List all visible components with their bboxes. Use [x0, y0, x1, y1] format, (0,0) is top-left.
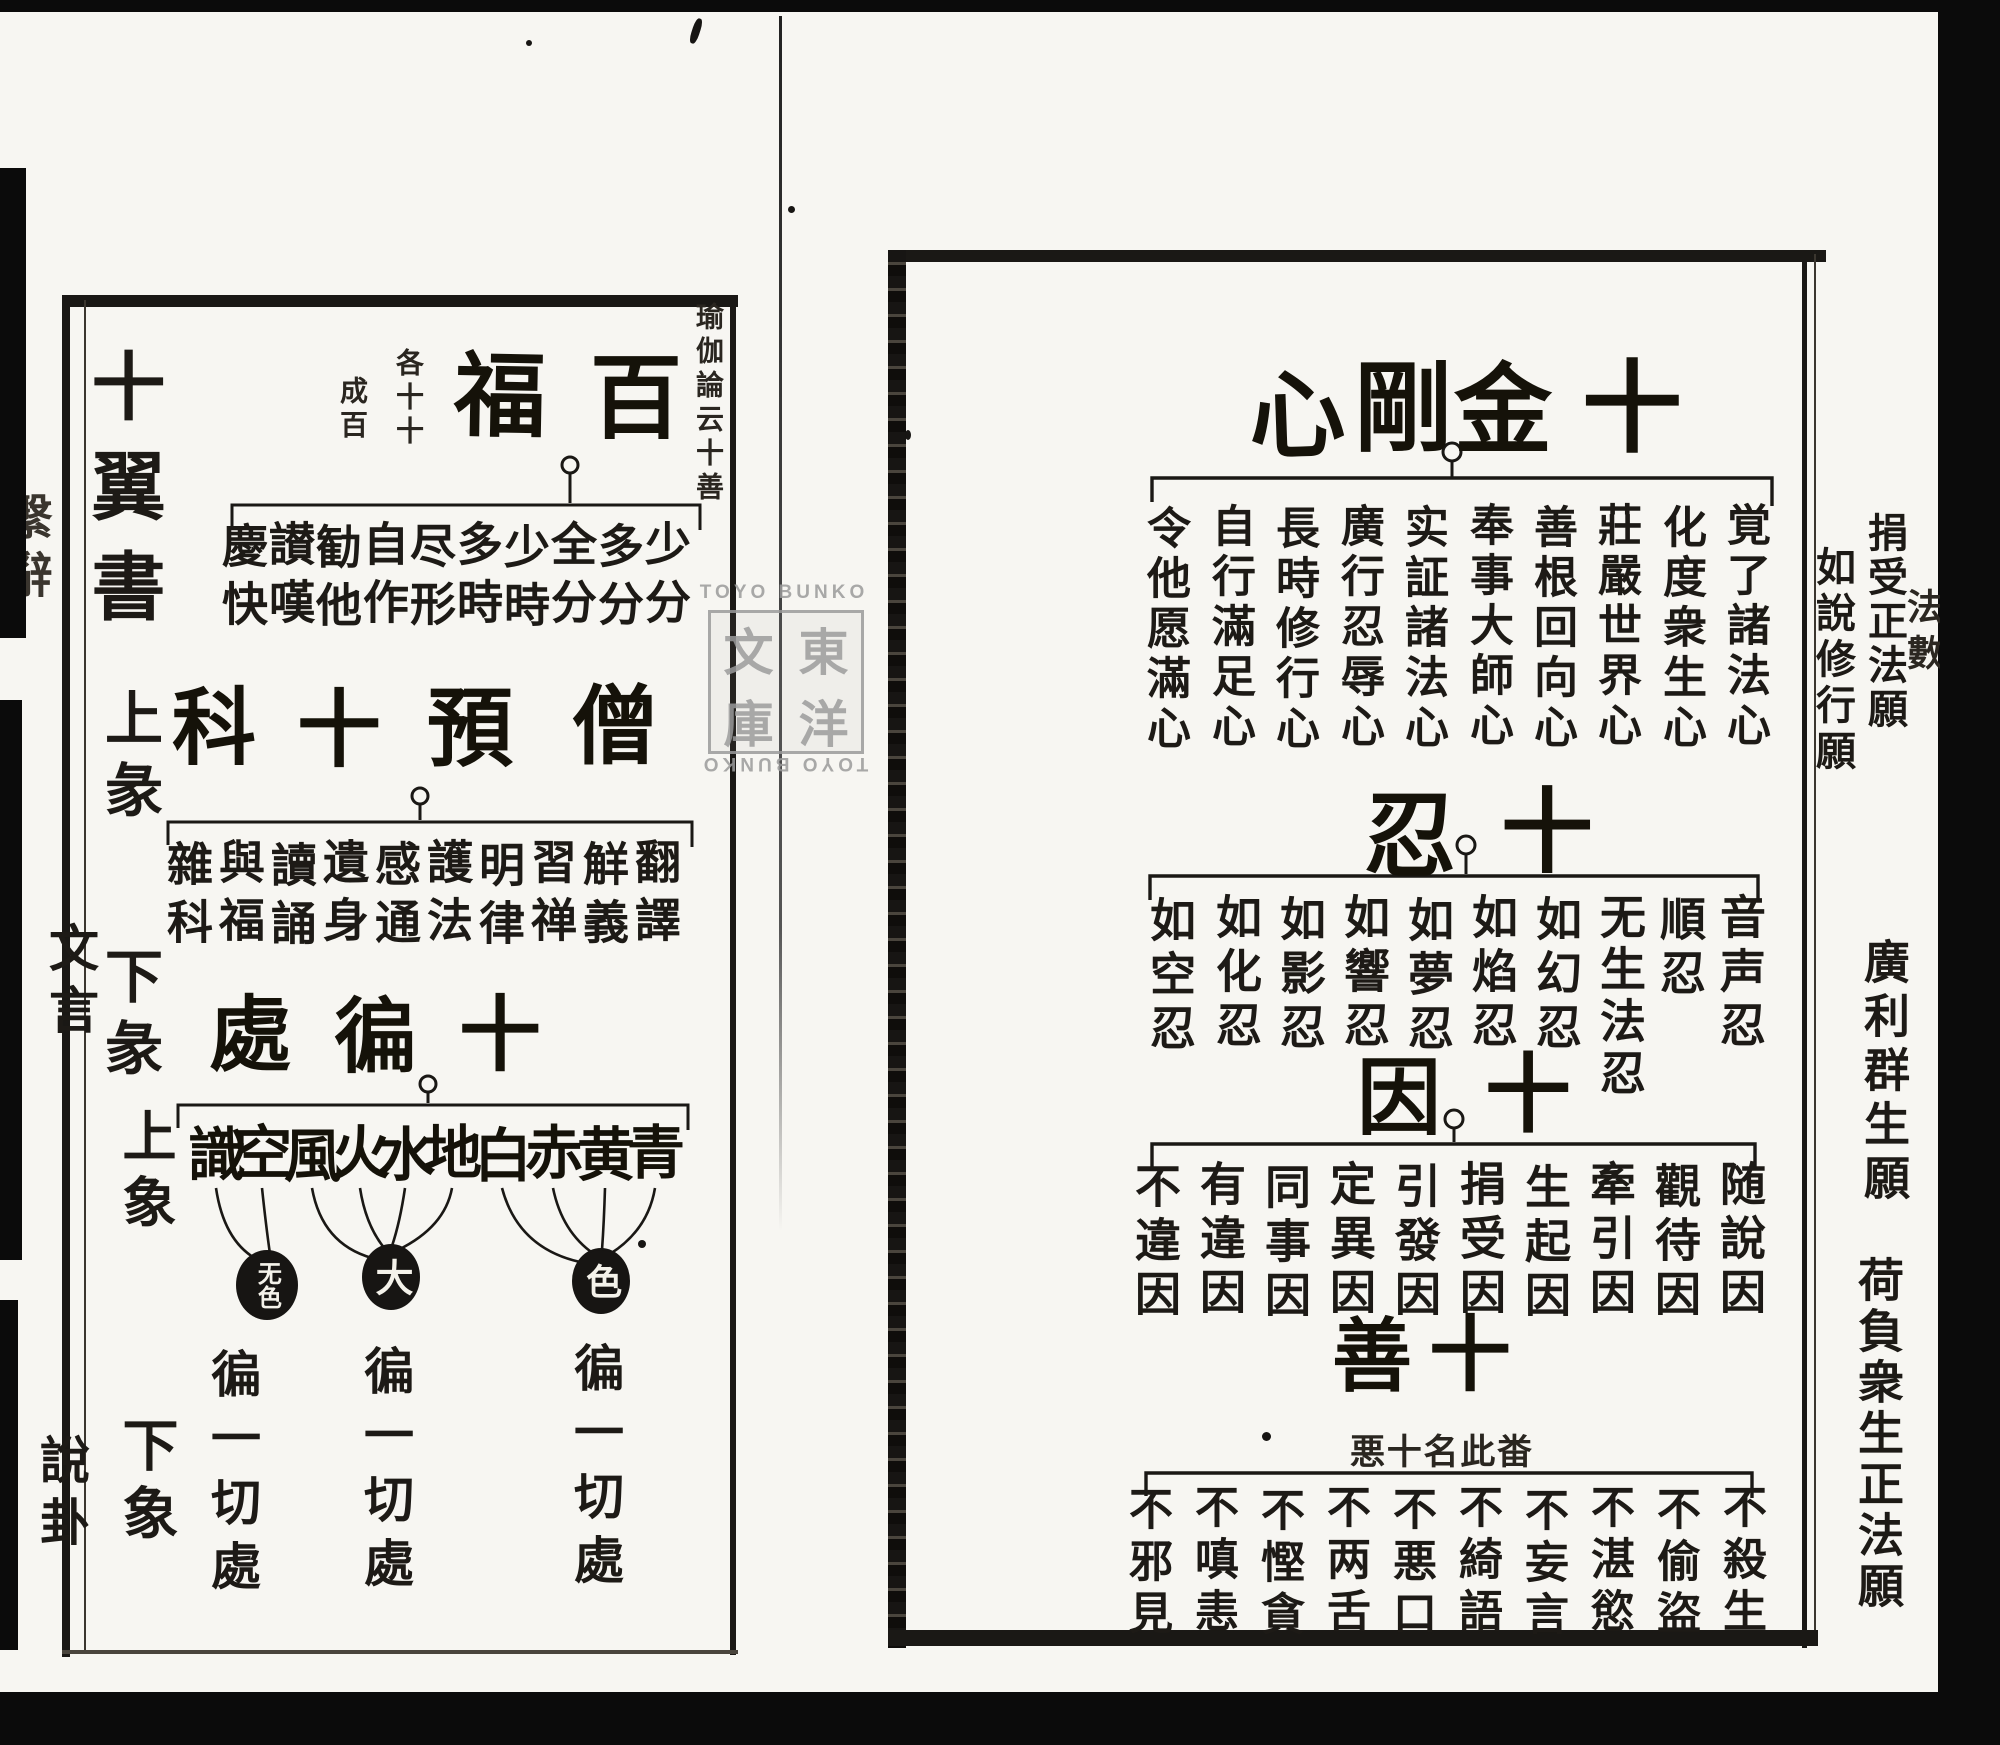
item-column: 讀誦 [268, 841, 314, 957]
item-column: 不違因 [1132, 1162, 1178, 1324]
watermark-bottom-text: TOYO BUNKO [694, 752, 874, 774]
fore-edge-label: 法數 [1904, 588, 1940, 680]
item-column: 明律 [476, 841, 522, 957]
right-title-kongo-4: 心 [1247, 366, 1346, 465]
ink-speck [638, 1240, 646, 1248]
item-column: 善根回向心 [1529, 504, 1573, 754]
edge-partial-clip: 繫辭 [26, 492, 62, 642]
margin-label-column: 十翼書 [85, 348, 159, 648]
item-column: 定異因 [1327, 1160, 1373, 1322]
item-column: 自行滿足心 [1207, 503, 1251, 753]
left-frame-top [62, 295, 738, 307]
item-column: 奉事大師心 [1465, 502, 1509, 752]
item-column: 與福 [216, 838, 262, 954]
item-column: 有違因 [1197, 1160, 1243, 1322]
zen-note-row: 悪 十 名 此 畨 [1350, 1424, 1532, 1475]
item-column: 如幻忍 [1533, 895, 1579, 1057]
photo-edge-left-3 [0, 1300, 18, 1650]
right-title-kongo-2: 金 [1454, 362, 1552, 460]
item-column: 不悪口 [1388, 1486, 1432, 1642]
right-title-nin-1: 十 [1501, 786, 1593, 878]
item-column: 習禅 [528, 838, 574, 954]
kasina-char: 青 [627, 1124, 685, 1182]
left-title-ka-1: 僧 [572, 684, 658, 770]
photo-edge-left-2 [0, 700, 22, 1260]
fuku-source-note: 瑜伽論云十善 [694, 302, 722, 506]
item-column: 長時修行心 [1271, 505, 1315, 755]
ink-speck [688, 17, 704, 44]
toyo-bunko-watermark: TOYO BUNKO 文 東 庫 洋 TOYO BUNKO [690, 582, 875, 777]
item-column: 不两舌 [1322, 1484, 1366, 1640]
kasina-char: 風 [284, 1127, 342, 1185]
right-frame-right-inner [1814, 254, 1816, 1644]
item-column: 引發因 [1392, 1162, 1438, 1324]
kasina-char: 識 [188, 1126, 246, 1184]
hen-repeat-column: 徧一切處 [360, 1345, 410, 1601]
item-column: 无生法忍 [1597, 893, 1643, 1101]
note-glyph: 悪 [1350, 1424, 1385, 1475]
item-column: 尽形 [407, 522, 453, 638]
item-column: 同事因 [1262, 1163, 1308, 1325]
right-frame-left-grain [888, 250, 906, 1648]
item-column: 自作 [360, 520, 406, 636]
left-title-fuku-2: 福 [453, 349, 547, 443]
right-title-zen-1: 十 [1429, 1314, 1511, 1396]
edge-partial-label: 繫辭 [26, 492, 48, 608]
item-column: 觧義 [580, 840, 626, 956]
item-column: 不綺語 [1454, 1484, 1498, 1640]
watermark-top-text: TOYO BUNKO [694, 582, 874, 604]
ink-speck [526, 40, 532, 46]
note-glyph: 此 [1460, 1424, 1495, 1475]
margin-vow-column: 捐受正法願 [1864, 512, 1904, 732]
item-column: 生起因 [1522, 1163, 1568, 1325]
left-title-fuku-1: 百 [590, 352, 682, 444]
margin-label-column: 下彖 [100, 946, 158, 1090]
left-frame-bottom [62, 1650, 738, 1654]
right-title-nin-2: 忍 [1364, 790, 1456, 882]
item-column: 翻譯 [632, 838, 678, 954]
watermark-seal: 文 東 庫 洋 [708, 610, 864, 754]
left-title-ka-3: 十 [297, 688, 381, 772]
item-column: 觀待因 [1652, 1162, 1698, 1324]
item-column: 如夢忍 [1405, 896, 1451, 1058]
item-column: 慶快 [219, 522, 265, 638]
item-column: 如焰忍 [1469, 893, 1515, 1055]
right-title-kongo-1: 十 [1582, 358, 1682, 458]
item-column: 全分 [548, 520, 594, 636]
item-column: 如化忍 [1213, 893, 1259, 1055]
item-column: 多分 [595, 522, 641, 638]
fore-edge-clip: 法數 [1904, 588, 1940, 748]
item-column: 勧他 [313, 523, 359, 639]
left-title-ka-4: 科 [172, 686, 256, 770]
item-column: 覚了諸法心 [1722, 502, 1766, 752]
kasina-char: 黄 [577, 1126, 635, 1184]
fuku-note-b: 成百 [338, 376, 366, 444]
item-column: 不殺生 [1718, 1484, 1762, 1640]
kasina-circle-mushiki: 无色 [238, 1252, 296, 1318]
circle-label: 无色 [256, 1261, 279, 1309]
item-column: 不慳貪 [1256, 1487, 1300, 1643]
circle-label: 大 [373, 1258, 409, 1296]
margin-label-column: 上彖 [100, 688, 158, 832]
item-column: 感通 [372, 840, 418, 956]
kasina-circle-dai: 大 [364, 1246, 418, 1308]
item-column: 順忍 [1657, 895, 1703, 1003]
ink-speck [788, 206, 795, 213]
kasina-char: 赤 [525, 1124, 583, 1182]
item-column: 不妄言 [1520, 1487, 1564, 1643]
item-column: 不邪見 [1124, 1486, 1168, 1642]
item-column: 如影忍 [1277, 895, 1323, 1057]
left-title-hen-2: 徧 [334, 996, 416, 1078]
item-column: 不偷盜 [1652, 1486, 1696, 1642]
margin-label-column: 文言 [45, 922, 95, 1046]
item-column: 多時 [454, 520, 500, 636]
seal-char-yo: 洋 [786, 685, 861, 757]
seal-char-ko: 庫 [711, 685, 786, 757]
item-column: 音声忍 [1717, 893, 1763, 1055]
item-column: 捐受因 [1457, 1160, 1503, 1322]
margin-vow-column: 廣利群生願 [1861, 938, 1907, 1208]
photo-edge-left-1 [0, 168, 26, 638]
photo-edge-right [1938, 0, 2000, 1745]
item-column: 遺身 [320, 838, 366, 954]
kasina-char: 白 [474, 1127, 532, 1185]
margin-label-column: 說卦 [36, 1434, 86, 1558]
item-column: 如響忍 [1341, 893, 1387, 1055]
photo-edge-bottom [0, 1692, 2000, 1745]
right-frame-top [890, 250, 1826, 262]
right-frame-right [1802, 250, 1807, 1648]
right-title-in-1: 十 [1485, 1052, 1571, 1138]
margin-label-column: 下象 [118, 1416, 174, 1552]
hen-repeat-column: 徧一切處 [570, 1342, 620, 1598]
item-column: 随說因 [1717, 1160, 1763, 1322]
kasina-circle-shiki: 色 [574, 1250, 628, 1312]
note-glyph: 十 [1387, 1424, 1422, 1475]
hen-repeat-column: 徧一切處 [207, 1348, 257, 1604]
seal-char-to: 東 [786, 613, 861, 685]
margin-label-column: 上象 [118, 1108, 172, 1240]
item-column: 護法 [424, 838, 470, 954]
kasina-curves [216, 1188, 655, 1262]
book-scan-page: { "watermark": { "top_text": "TOYO BUNKO… [0, 0, 2000, 1745]
seal-char-bun: 文 [711, 613, 786, 685]
left-title-ka-2: 預 [427, 686, 513, 772]
item-column: 化度衆生心 [1658, 504, 1702, 754]
photo-edge-top [0, 0, 2000, 12]
ink-speck [905, 430, 911, 440]
right-title-kongo-3: 剛 [1354, 360, 1452, 458]
left-title-hen-3: 處 [209, 994, 291, 1076]
left-title-hen-1: 十 [459, 994, 541, 1076]
item-column: 少分 [642, 520, 688, 636]
item-column: 不湛慾 [1586, 1484, 1630, 1640]
note-glyph: 名 [1423, 1424, 1458, 1475]
circle-label: 色 [584, 1263, 618, 1299]
left-frame-right [730, 295, 736, 1655]
right-title-in-2: 因 [1357, 1056, 1441, 1140]
right-title-zen-2: 善 [1332, 1316, 1412, 1396]
item-column: 令他愿滿心 [1142, 505, 1186, 755]
item-column: 雜科 [164, 840, 210, 956]
item-column: 廣行忍辱心 [1336, 503, 1380, 753]
margin-vow-column: 荷負衆生正法願 [1855, 1256, 1901, 1613]
fuku-note-a: 各十十 [394, 348, 422, 450]
item-column: 牽引因 [1587, 1160, 1633, 1322]
item-column: 如空忍 [1147, 896, 1193, 1058]
item-column: 莊嚴世界心 [1593, 502, 1637, 752]
item-column: 讃嘆 [266, 520, 312, 636]
item-column: 少時 [501, 523, 547, 639]
margin-vow-column: 如說修行願 [1812, 546, 1852, 776]
item-column: 实証諸法心 [1400, 504, 1444, 754]
ink-speck [1262, 1432, 1271, 1441]
note-glyph: 畨 [1497, 1424, 1532, 1475]
item-column: 不嗔恚 [1190, 1484, 1234, 1640]
